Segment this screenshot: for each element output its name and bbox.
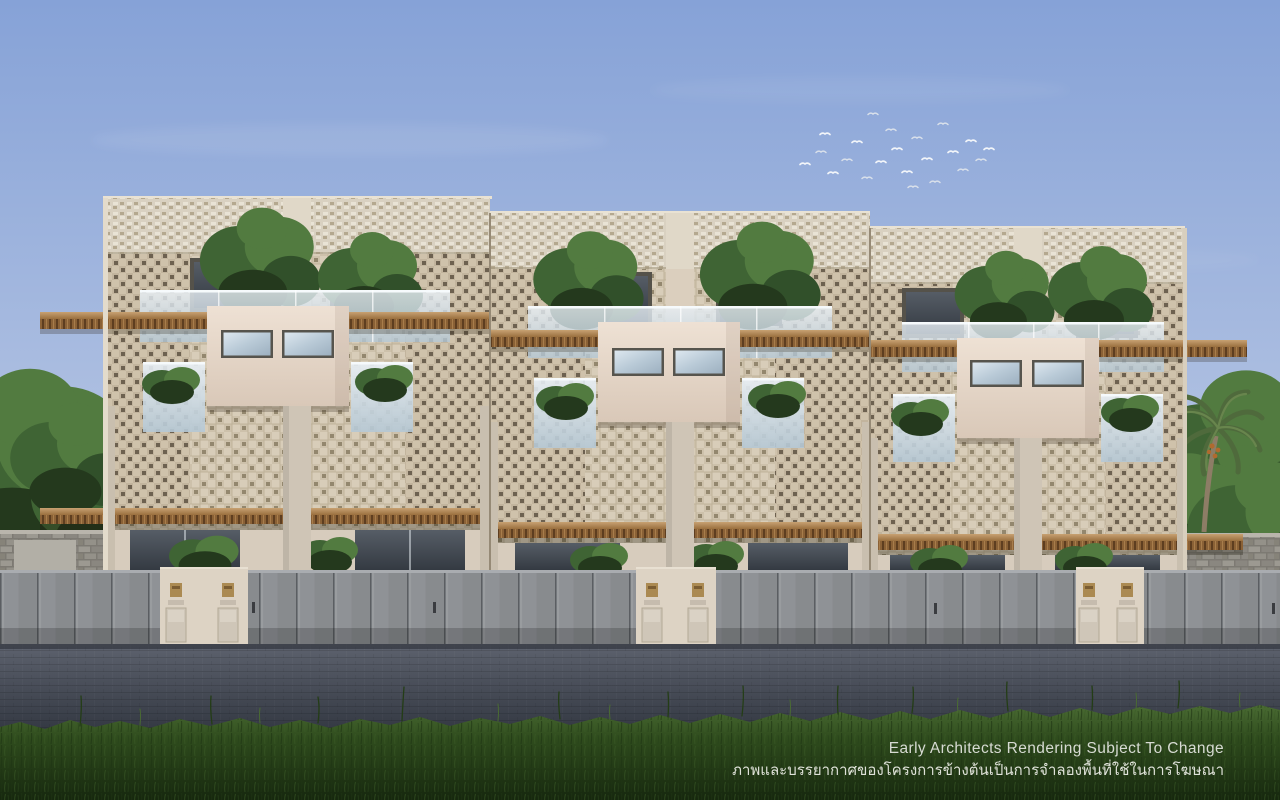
bird-icon [876,161,886,162]
mailbox-pillar [160,567,248,646]
edge-column [490,422,498,570]
disclaimer: Early Architects Rendering Subject To Ch… [732,739,1224,781]
gate-handle [1272,603,1275,614]
bird-icon [948,151,958,152]
edge-column [870,438,878,570]
disclaimer-line-th: ภาพและบรรยากาศของโครงการข้างต้นเป็นการจำ… [732,762,1224,781]
feature-box [957,338,1099,444]
gate-handle [433,602,436,613]
feature-box [598,322,740,428]
bird-icon [828,172,838,173]
front-fence [0,567,1280,646]
mailbox-pillar [1076,567,1144,646]
block-seam [869,228,871,570]
bird-icon [966,140,976,141]
stair-bulkhead [666,213,694,269]
bird-icon [902,171,912,172]
block-seam [489,213,491,570]
mailbox-pillar [636,567,716,646]
architectural-rendering: Early Architects Rendering Subject To Ch… [0,0,1280,800]
gate-handle [934,603,937,614]
bird-icon [820,133,830,134]
gate-handle [252,602,255,613]
edge-column [862,422,870,570]
building-block-middle [489,211,870,580]
disclaimer-line-en: Early Architects Rendering Subject To Ch… [732,739,1224,758]
feature-box [207,306,349,412]
bird-icon [800,163,810,164]
edge-column [480,406,490,570]
bird-icon [984,148,994,149]
building-block-left [40,196,492,580]
bird-icon [892,148,902,149]
bird-icon [922,158,932,159]
scene-svg [0,0,1280,800]
bird-icon [852,141,862,142]
